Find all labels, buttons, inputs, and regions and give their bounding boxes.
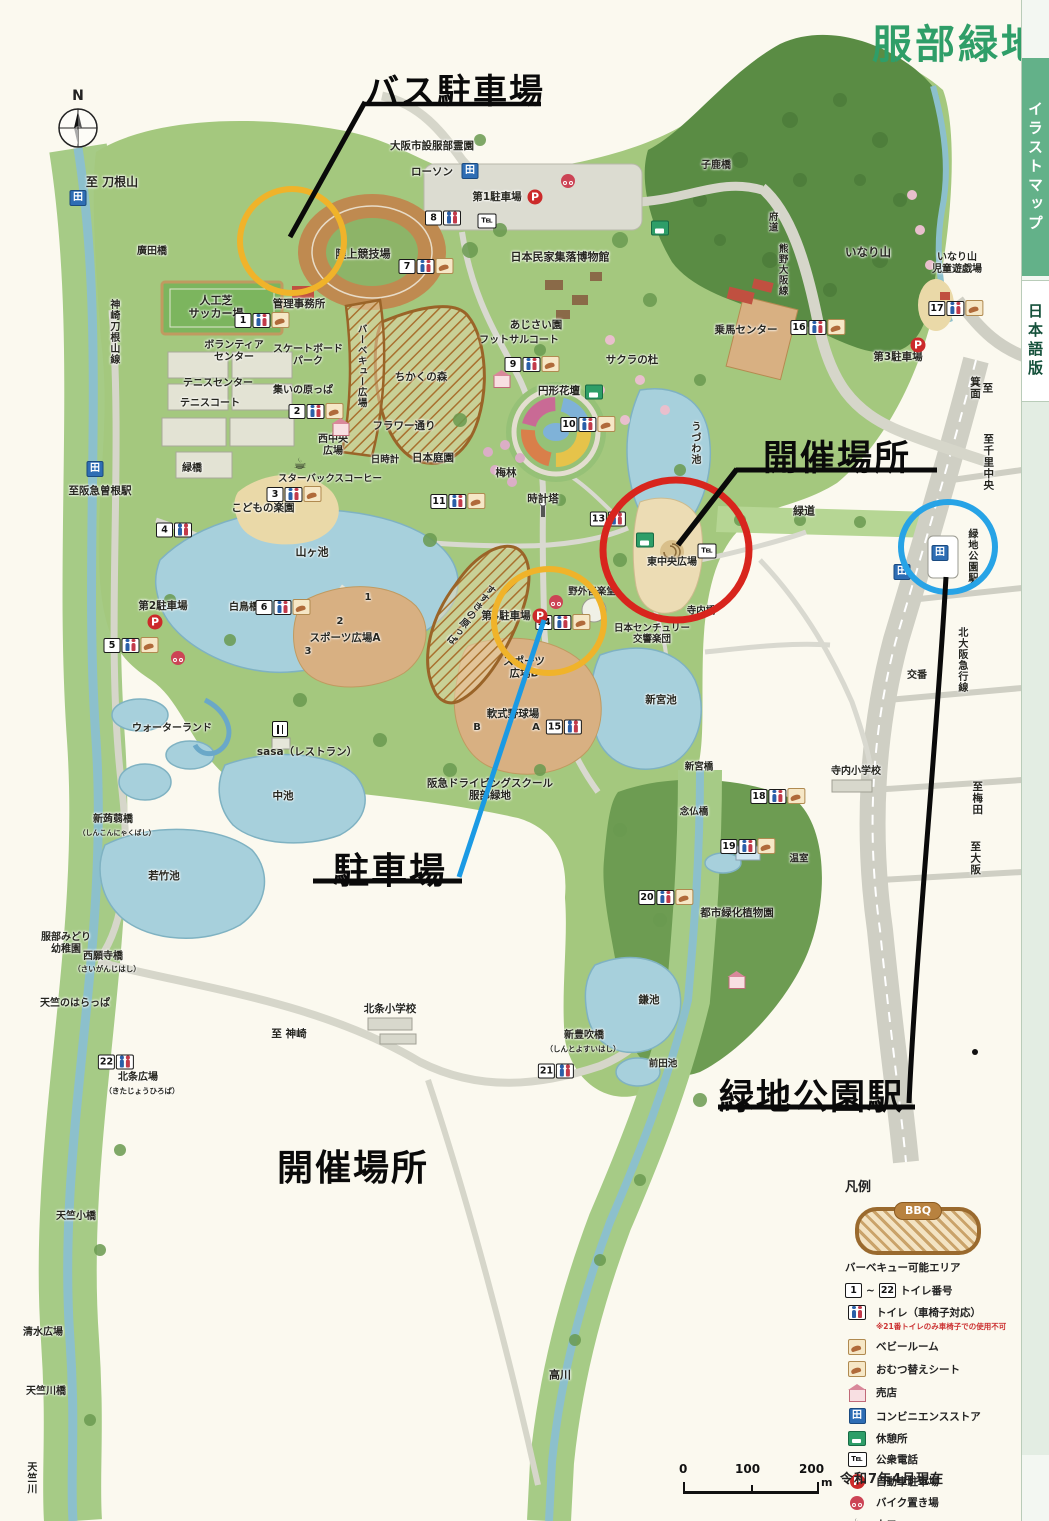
bike-icon bbox=[850, 1496, 864, 1510]
bbq-area-sample: BBQ bbox=[855, 1207, 981, 1255]
annotation-bus-parking: バス駐車場 bbox=[365, 64, 545, 113]
legend-item: 田コンビニエンスストア bbox=[845, 1408, 1023, 1424]
legend-item: ☕カフェ bbox=[845, 1517, 1023, 1521]
legend-item-label: カフェ bbox=[876, 1517, 908, 1521]
scale-tick-100: 100 bbox=[735, 1462, 760, 1476]
legend-item: おむつ替えシート bbox=[845, 1361, 1023, 1377]
toilet-range-label: トイレ番号 bbox=[900, 1283, 953, 1298]
legend-item: バイク置き場 bbox=[845, 1495, 1023, 1510]
legend-item-label: バイク置き場 bbox=[876, 1495, 939, 1510]
park-map-sheet: 至 刀根山廣田橋神崎刀根山線人工芝 サッカー場管理事務所陸上競技場ボランティア … bbox=[0, 0, 1049, 1521]
page-title: 服部緑地 bbox=[872, 12, 1044, 70]
tab-japanese-version-label: 日本語版 bbox=[1025, 303, 1046, 379]
range-separator: ~ bbox=[866, 1285, 875, 1297]
scale-line bbox=[683, 1482, 819, 1494]
annotation-station: 緑地公園駅 bbox=[719, 1069, 904, 1120]
map-date-note: 令和7年4月現在 bbox=[840, 1468, 1035, 1487]
diaper-icon bbox=[848, 1339, 866, 1355]
scale-unit: m bbox=[821, 1476, 832, 1489]
sidebar: イラストマップ 日本語版 bbox=[1021, 0, 1049, 1521]
legend-item-note: ※21番トイレのみ車椅子での使用不可 bbox=[876, 1321, 1023, 1332]
legend-heading: 凡例 bbox=[845, 1176, 1023, 1195]
bbq-badge: BBQ bbox=[894, 1202, 942, 1220]
annotation-event-location-bottom: 開催場所 bbox=[277, 1139, 429, 1191]
legend-item-label: 公衆電話 bbox=[876, 1452, 918, 1467]
scale-bar: 0 100 200 m bbox=[675, 1462, 845, 1507]
legend-item: ℡公衆電話 bbox=[845, 1452, 1023, 1467]
tab-illust-map: イラストマップ bbox=[1022, 58, 1049, 276]
compass-north-label: N bbox=[72, 88, 84, 104]
rest-icon bbox=[848, 1431, 866, 1446]
legend-item: 売店 bbox=[845, 1384, 1023, 1402]
legend-item-label: トイレ（車椅子対応） bbox=[876, 1305, 981, 1320]
legend-item: トイレ（車椅子対応） bbox=[845, 1305, 1023, 1320]
legend-item-label: 売店 bbox=[876, 1385, 897, 1400]
legend-items: トイレ（車椅子対応）※21番トイレのみ車椅子での使用不可ベビールームおむつ替えシ… bbox=[845, 1305, 1023, 1521]
annotation-parking: 駐車場 bbox=[333, 842, 447, 894]
wc-icon bbox=[848, 1305, 866, 1320]
legend-item-label: ベビールーム bbox=[876, 1339, 939, 1354]
toilet-number-box: 22 bbox=[879, 1283, 896, 1298]
toilet-number-box: 1 bbox=[845, 1283, 862, 1298]
diaper-icon bbox=[848, 1361, 866, 1377]
compass-icon bbox=[59, 109, 97, 147]
shop-icon bbox=[849, 1389, 866, 1402]
legend-toilet-range: 1 ~ 22 トイレ番号 bbox=[845, 1283, 1023, 1298]
bbq-area-label: バーベキュー可能エリア bbox=[845, 1260, 1023, 1275]
scale-tick-0: 0 bbox=[679, 1462, 687, 1476]
scale-tick-200: 200 bbox=[799, 1462, 824, 1476]
sidebar-strip bbox=[1022, 400, 1049, 1455]
legend-item: 休憩所 bbox=[845, 1431, 1023, 1446]
annotation-event-location: 開催場所 bbox=[763, 430, 911, 481]
conbini-icon: 田 bbox=[849, 1408, 866, 1424]
legend-item-label: 休憩所 bbox=[876, 1431, 908, 1446]
legend-item-label: おむつ替えシート bbox=[876, 1362, 960, 1377]
tab-illust-map-label: イラストマップ bbox=[1025, 101, 1046, 234]
legend-item-label: コンビニエンスストア bbox=[876, 1409, 981, 1424]
legend-item: ベビールーム bbox=[845, 1339, 1023, 1355]
cafe-icon: ☕ bbox=[850, 1517, 863, 1521]
tel-icon: ℡ bbox=[848, 1452, 867, 1467]
tab-japanese-version: 日本語版 bbox=[1022, 280, 1049, 402]
